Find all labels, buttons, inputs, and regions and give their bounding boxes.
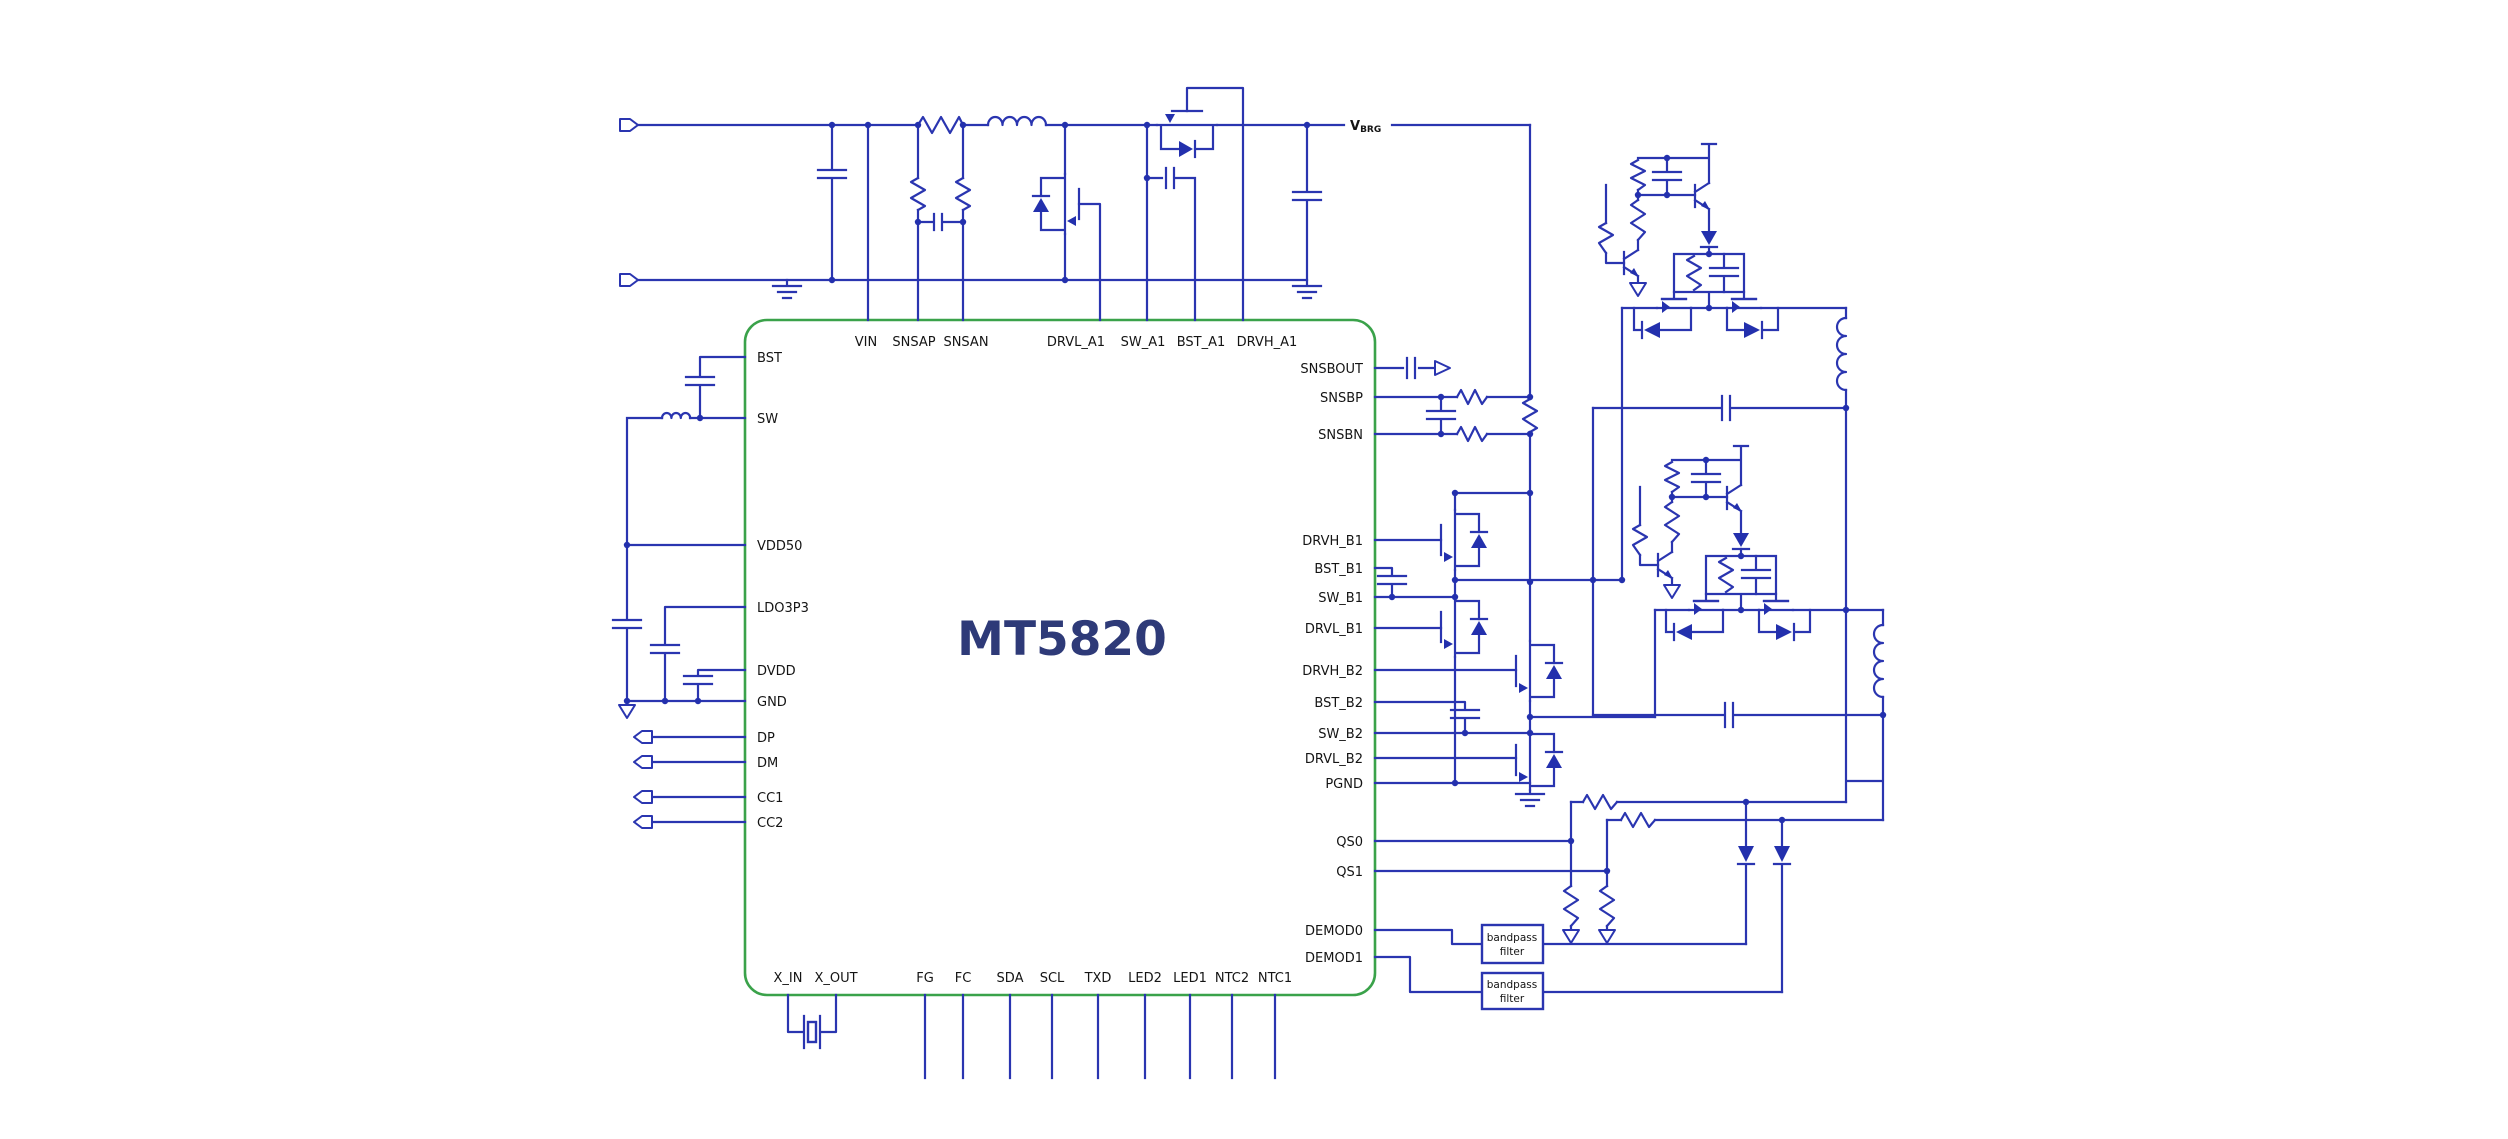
drv1-bjt-ctl (1624, 250, 1639, 277)
pin-label-drvl-a1: DRVL_A1 (1047, 335, 1105, 350)
qs0-wire (1375, 802, 1571, 930)
pin-label-sw-b1: SW_B1 (1318, 591, 1363, 606)
drv1-ground-arrow-icon (1630, 283, 1646, 296)
snsbn-resistor (1457, 427, 1487, 441)
pin-label-drvh-b1: DRVH_B1 (1302, 534, 1363, 549)
drv2-gate-cap (1742, 556, 1770, 594)
pin-label-demod0: DEMOD0 (1305, 924, 1363, 939)
bst-cap (686, 357, 745, 418)
tank1-rail-and-cap (1593, 396, 1846, 420)
digital-pin-stubs (925, 995, 1275, 1078)
pin-label-ntc2: NTC2 (1215, 971, 1249, 986)
pin-label-vin: VIN (855, 335, 877, 350)
pin-label-scl: SCL (1040, 971, 1065, 986)
coil-sense-rails (1846, 408, 1883, 820)
dp-terminal (634, 731, 652, 743)
pin-label-qs1: QS1 (1336, 865, 1363, 880)
crystal-icon (808, 1022, 816, 1042)
fet-b1-low (1441, 597, 1487, 657)
demod-diode-1-leads (1738, 802, 1754, 944)
bottom-pins (788, 995, 1275, 1078)
ground-icon (1293, 286, 1321, 298)
pin-label-qs0: QS0 (1336, 835, 1363, 850)
snsbp-resistor (1457, 390, 1487, 404)
sense-resistor-a (918, 117, 963, 133)
switch1-fet-left (1657, 299, 1691, 313)
drv2-bjt-ctl (1658, 552, 1673, 579)
sense-filter-cap (918, 214, 963, 230)
pin-label-pgnd: PGND (1325, 777, 1363, 792)
fet-b1-high (1441, 510, 1487, 570)
drv2-resistor2 (1665, 502, 1679, 542)
drvl-a1-gate-wire (1079, 204, 1100, 320)
drv1-bjt-main (1695, 183, 1710, 210)
pin-label-drvh-b2: DRVH_B2 (1302, 664, 1363, 679)
demod-diode-2-leads (1774, 820, 1790, 992)
pin-label-snsbn: SNSBN (1318, 428, 1363, 443)
switch1-diode-right-icon (1744, 322, 1760, 338)
pin-label-drvl-b1: DRVL_B1 (1305, 622, 1363, 637)
pin-label-sw-a1: SW_A1 (1121, 335, 1166, 350)
drv1-gate-cap (1710, 254, 1738, 292)
bootstrap-cap-a1 (1147, 168, 1195, 320)
pin-label-sw-b2: SW_B2 (1318, 727, 1363, 742)
snsbout-cap (1375, 358, 1435, 378)
halfbridge-b (1375, 493, 1655, 806)
tank2-rail-and-cap (1593, 703, 1883, 727)
qs0-pulldown-resistor (1564, 886, 1578, 926)
coil1-inductor (1837, 318, 1846, 390)
pin-label-fc: FC (955, 971, 972, 986)
pin-label-bst: BST (757, 351, 782, 366)
drv1-cap-top (1653, 158, 1681, 195)
pin-label-demod1: DEMOD1 (1305, 951, 1363, 966)
drv2-supply (1672, 446, 1748, 485)
cc1-terminal (634, 791, 652, 803)
drv1-resistor2 (1631, 200, 1645, 240)
shunt-resistor-b (1523, 399, 1537, 432)
pin-label-snsan: SNSAN (943, 335, 988, 350)
snsbout-arrow-icon (1435, 361, 1450, 375)
bandpass-filter-1-line1: bandpass (1487, 932, 1537, 944)
cc2-terminal (634, 816, 652, 828)
coil2-inductor (1874, 625, 1883, 697)
pin-label-vdd50: VDD50 (757, 539, 802, 554)
input-cap (818, 125, 846, 280)
dvdd-cap (684, 670, 745, 701)
pin-label-snsbp: SNSBP (1320, 391, 1363, 406)
mt5820-application-schematic: MT5820 VBRG (0, 0, 2508, 1139)
pin-label-dp: DP (757, 731, 775, 746)
pin-label-fg: FG (916, 971, 934, 986)
pin-label-cc1: CC1 (757, 791, 783, 806)
snsan-filter-resistor (956, 178, 970, 210)
demod-diode-2-icon (1774, 846, 1790, 862)
demod-diode-1-icon (1738, 846, 1754, 862)
switch2-diode-left-icon (1676, 624, 1692, 640)
pin-label-led2: LED2 (1128, 971, 1162, 986)
pin-label-dvdd: DVDD (757, 664, 796, 679)
demod0-wire (1375, 930, 1746, 944)
drv1-resistor-top (1631, 160, 1645, 190)
left-side-network (613, 357, 745, 828)
lowside-fet-a1 (1033, 174, 1079, 234)
drv2-gate-resistor (1719, 558, 1733, 592)
pin-label-txd: TXD (1084, 971, 1112, 986)
bootstrap-cap-b1 (1375, 568, 1406, 597)
demod1-wire (1375, 957, 1782, 992)
pin-label-drvl-b2: DRVL_B2 (1305, 752, 1363, 767)
switch2-fet-left (1689, 601, 1723, 615)
qs1-series-resistor (1621, 813, 1655, 827)
input-stage: VBRG (620, 88, 1530, 320)
pin-label-x-out: X_OUT (814, 971, 857, 986)
pin-label-bst-a1: BST_A1 (1177, 335, 1226, 350)
switch1-diode-left-icon (1644, 322, 1660, 338)
pin-label-dm: DM (757, 756, 778, 771)
pin-label-gnd: GND (757, 695, 787, 710)
ic-part-number: MT5820 (957, 612, 1167, 667)
pin-label-x-in: X_IN (774, 971, 803, 986)
coil-select-block-2 (1593, 446, 1883, 727)
ground-arrow-icon (619, 705, 635, 718)
qs-demod-network: bandpass filter bandpass filter (1375, 408, 1883, 1009)
ground-icon (773, 286, 801, 298)
drv2-diode-icon (1733, 533, 1749, 547)
bootstrap-cap-b2 (1375, 702, 1479, 733)
input-terminal-plus (620, 119, 638, 131)
bandpass-filter-2-line2: filter (1500, 993, 1525, 1005)
coil-select-block-1 (1593, 144, 1846, 715)
pass-fet-a1 (1157, 111, 1217, 157)
drv2-resistor-top (1665, 462, 1679, 492)
sw-inductor (662, 413, 690, 418)
switch2-fet-right (1759, 601, 1793, 615)
pin-label-snsbout: SNSBOUT (1300, 362, 1363, 377)
drv2-bjt-main (1727, 485, 1742, 512)
snsap-filter-resistor (911, 178, 925, 210)
sw-wire (627, 418, 745, 618)
drv1-control-wire (1606, 185, 1624, 263)
pin-label-bst-b1: BST_B1 (1314, 562, 1363, 577)
pin-label-cc2: CC2 (757, 816, 783, 831)
b1h-drain-wire (1455, 493, 1530, 510)
drv1-control-resistor (1599, 223, 1613, 253)
vbrg-net-label: VBRG (1350, 119, 1381, 135)
pin-label-sda: SDA (997, 971, 1024, 986)
pin-label-bst-b2: BST_B2 (1314, 696, 1363, 711)
drv1-gate-resistor (1687, 256, 1701, 290)
pin-label-drvh-a1: DRVH_A1 (1237, 335, 1298, 350)
drv2-cap-top (1692, 460, 1720, 497)
bandpass-filter-2-line1: bandpass (1487, 979, 1537, 991)
pin-label-ldo3p3: LDO3P3 (757, 601, 809, 616)
pin-label-ntc1: NTC1 (1258, 971, 1292, 986)
pin-label-sw: SW (757, 412, 778, 427)
switch1-fet-right (1727, 299, 1761, 313)
drv2-base-wire (1672, 492, 1727, 497)
vdd50-cap (613, 620, 641, 701)
dm-terminal (634, 756, 652, 768)
pgnd-ground-icon (1516, 794, 1544, 806)
fet-b2-low (1516, 730, 1562, 790)
switch2-diode-right-icon (1776, 624, 1792, 640)
schematic-canvas: MT5820 VBRG (0, 0, 2508, 1139)
bandpass-filter-1-line2: filter (1500, 946, 1525, 958)
snsb-filter-cap (1427, 397, 1455, 434)
drv2-ground-arrow-icon (1664, 585, 1680, 598)
boost-inductor (988, 117, 1046, 125)
qs1-ground-arrow-icon (1599, 930, 1615, 943)
drv1-diode-icon (1701, 231, 1717, 245)
drv2-control-wire (1640, 487, 1658, 565)
qs1-pulldown-resistor (1600, 886, 1614, 926)
fet-b2-high (1516, 641, 1562, 701)
pin-label-snsap: SNSAP (892, 335, 935, 350)
drv2-control-resistor (1633, 525, 1647, 555)
qs0-ground-arrow-icon (1563, 930, 1579, 943)
drv1-supply (1638, 144, 1716, 183)
input-terminal-minus (620, 274, 638, 286)
qs0-series-resistor (1583, 795, 1617, 809)
pin-label-led1: LED1 (1173, 971, 1207, 986)
vbrg-cap (1293, 125, 1321, 284)
